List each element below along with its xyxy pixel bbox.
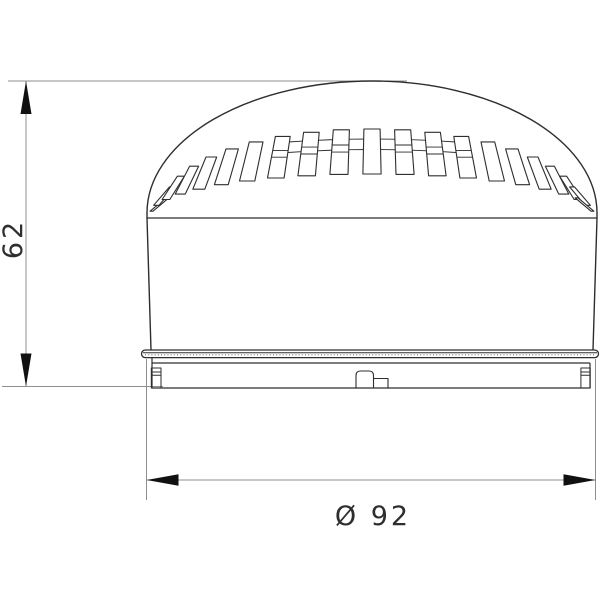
- louver-slot: [481, 142, 505, 181]
- mounting-base: [151, 358, 590, 388]
- sounder-body: [142, 81, 599, 388]
- louver-slot: [214, 149, 238, 185]
- louver-slot-group: [150, 129, 594, 211]
- dome-outline: [147, 81, 597, 350]
- dimension-lines: [2, 81, 596, 500]
- technical-drawing-canvas: 62 Ø 92: [0, 0, 600, 600]
- drawing-page: 62 Ø 92: [0, 0, 600, 600]
- louver-slot: [193, 157, 217, 189]
- arrow-right-icon: [564, 474, 596, 485]
- arrow-down-icon: [21, 354, 32, 387]
- louver-slot: [240, 142, 264, 181]
- arrow-up-icon: [21, 81, 32, 114]
- cable-clamp: [356, 371, 388, 388]
- base-outline: [152, 358, 590, 388]
- arrow-left-icon: [147, 474, 179, 485]
- louver-slot: [527, 157, 551, 189]
- diameter-dimension-label: Ø 92: [335, 501, 411, 532]
- mounting-tab-right: [581, 368, 590, 388]
- louver-slot: [363, 129, 381, 174]
- mounting-tab-left: [151, 368, 161, 388]
- height-dimension-label: 62: [0, 219, 29, 259]
- louver-slot: [506, 149, 530, 185]
- flange-ring: [142, 350, 599, 358]
